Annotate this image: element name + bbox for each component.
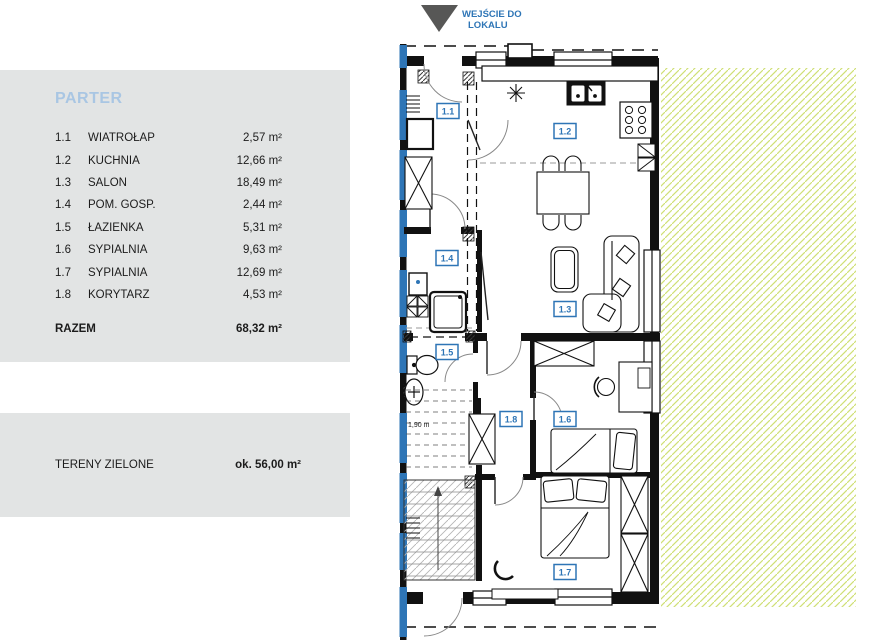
utility-room — [407, 273, 466, 332]
svg-text:1.7: 1.7 — [559, 568, 572, 578]
room-area: 9,63 m² — [243, 244, 282, 256]
entrance-marker: WEJŚCIE DO LOKALU — [421, 5, 522, 32]
stairs: 1,90 m — [404, 390, 475, 580]
toilet — [407, 356, 438, 375]
room-id: 1.1 — [55, 132, 88, 144]
room-table: 1.1 WIATROŁAP 2,57 m² 1.2 KUCHNIA 12,66 … — [55, 127, 282, 340]
armchair — [495, 561, 513, 579]
room-area: 5,31 m² — [243, 222, 282, 234]
room-id: 1.7 — [55, 267, 88, 279]
svg-text:1.5: 1.5 — [441, 348, 454, 358]
entrance-label-line1: WEJŚCIE DO — [462, 8, 522, 20]
bedroom-large — [492, 476, 609, 599]
room-name: POM. GOSP. — [88, 199, 243, 211]
room-name: KUCHNIA — [88, 155, 237, 167]
room-area: 12,69 m² — [237, 267, 282, 279]
room-label: 1.8 — [500, 412, 522, 427]
bedroom-wardrobe — [621, 476, 648, 533]
table-row: 1.2 KUCHNIA 12,66 m² — [55, 149, 282, 171]
green-areas-row: TERENY ZIELONE ok. 56,00 m² — [55, 459, 301, 471]
desk — [619, 362, 652, 412]
headroom-label: 1,90 m — [408, 422, 430, 429]
desk-chair — [594, 377, 614, 397]
table-row: 1.1 WIATROŁAP 2,57 m² — [55, 127, 282, 149]
room-label: 1.2 — [554, 124, 576, 139]
floor-plan-page: PARTER 1.1 WIATROŁAP 2,57 m² 1.2 KUCHNIA… — [0, 0, 869, 644]
living-room — [551, 236, 639, 332]
svg-text:1.8: 1.8 — [505, 415, 518, 425]
kitchen-appliances — [638, 144, 655, 171]
total-area: 68,32 m² — [236, 323, 282, 335]
legend-panel: PARTER 1.1 WIATROŁAP 2,57 m² 1.2 KUCHNIA… — [0, 70, 350, 362]
room-label: 1.3 — [554, 302, 576, 317]
chimney — [508, 44, 532, 58]
dining-table-set — [537, 156, 589, 230]
room-name: SALON — [88, 177, 237, 189]
green-areas-panel: TERENY ZIELONE ok. 56,00 m² — [0, 413, 350, 517]
green-areas-value: ok. 56,00 m² — [235, 459, 301, 471]
room-label: 1.1 — [437, 104, 459, 119]
room-area: 2,44 m² — [243, 199, 282, 211]
corridor-wardrobe — [469, 414, 495, 464]
svg-text:1.3: 1.3 — [559, 305, 572, 315]
window-sill — [492, 589, 558, 599]
double-bed — [541, 476, 609, 558]
room-id: 1.5 — [55, 222, 88, 234]
kitchen — [482, 66, 658, 230]
room-id: 1.8 — [55, 289, 88, 301]
page-title: PARTER — [55, 90, 123, 108]
kitchen-sink — [567, 82, 605, 105]
room-id: 1.3 — [55, 177, 88, 189]
green-areas-label: TERENY ZIELONE — [55, 459, 235, 471]
washing-machine — [430, 292, 466, 332]
wardrobe — [405, 157, 432, 209]
room-label: 1.6 — [554, 412, 576, 427]
room-name: ŁAZIENKA — [88, 222, 243, 234]
room-name: KORYTARZ — [88, 289, 243, 301]
room-label: 1.5 — [436, 345, 458, 360]
table-row: 1.7 SYPIALNIA 12,69 m² — [55, 261, 282, 283]
room-name: SYPIALNIA — [88, 267, 237, 279]
bathroom — [405, 356, 438, 406]
svg-text:1.6: 1.6 — [559, 415, 572, 425]
table-row: 1.5 ŁAZIENKA 5,31 m² — [55, 217, 282, 239]
svg-text:1.1: 1.1 — [442, 107, 455, 117]
entrance-label-line2: LOKALU — [468, 20, 508, 31]
total-label: RAZEM — [55, 323, 236, 335]
room-label: 1.7 — [554, 565, 576, 580]
stove — [620, 102, 652, 138]
table-row: 1.8 KORYTARZ 4,53 m² — [55, 284, 282, 306]
table-row: 1.4 POM. GOSP. 2,44 m² — [55, 194, 282, 216]
hall-wardrobe — [534, 341, 594, 366]
room-area: 12,66 m² — [237, 155, 282, 167]
svg-text:1.2: 1.2 — [559, 127, 572, 137]
entry-cabinet — [407, 119, 433, 149]
pillow — [576, 479, 607, 503]
single-bed — [551, 429, 637, 473]
kitchen-counter — [482, 66, 658, 81]
entrance-arrow-icon — [421, 5, 458, 32]
bedroom-wardrobe — [621, 534, 648, 592]
sofa — [583, 236, 639, 332]
pillow — [613, 432, 636, 470]
table-row: 1.6 SYPIALNIA 9,63 m² — [55, 239, 282, 261]
room-area: 18,49 m² — [237, 177, 282, 189]
room-area: 2,57 m² — [243, 132, 282, 144]
svg-text:1.4: 1.4 — [441, 254, 454, 264]
room-id: 1.2 — [55, 155, 88, 167]
total-row: RAZEM 68,32 m² — [55, 318, 282, 340]
room-name: WIATROŁAP — [88, 132, 243, 144]
room-name: SYPIALNIA — [88, 244, 243, 256]
green-area-hatch — [661, 68, 856, 607]
room-id: 1.6 — [55, 244, 88, 256]
pillow — [543, 478, 574, 502]
room-area: 4,53 m² — [243, 289, 282, 301]
room-label: 1.4 — [436, 251, 458, 266]
utility-fixtures — [407, 296, 428, 317]
room-id: 1.4 — [55, 199, 88, 211]
table-row: 1.3 SALON 18,49 m² — [55, 172, 282, 194]
ceiling-lamp-icon — [507, 84, 525, 102]
